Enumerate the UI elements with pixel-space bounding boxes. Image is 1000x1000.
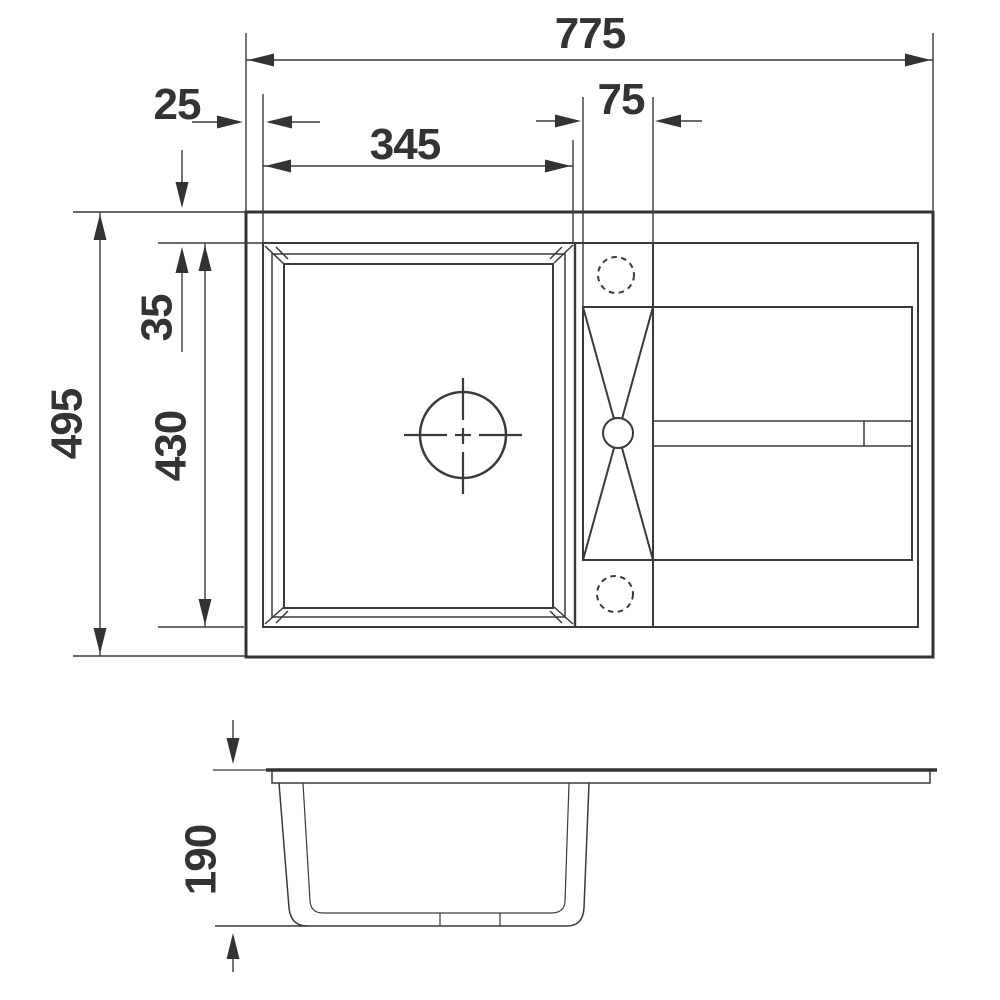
top-view-outer-outline — [246, 212, 933, 657]
tap-hole-option-bottom — [597, 576, 633, 612]
drainboard — [653, 307, 912, 560]
side-bowl — [215, 783, 589, 926]
tap-hole — [603, 418, 633, 448]
dim-bowl-height — [227, 720, 240, 972]
side-view — [213, 770, 937, 926]
tap-hole-option-top — [598, 257, 634, 293]
bowl-wall-left-outer — [279, 783, 307, 926]
top-view-inner-rim — [263, 243, 918, 627]
label-bowl-depth: 430 — [147, 411, 196, 481]
label-bowl-height: 190 — [177, 825, 226, 895]
dimension-labels: 775 25 345 75 495 35 430 190 — [43, 9, 645, 895]
drain-crosshair — [404, 378, 522, 494]
label-bowl-width: 345 — [370, 120, 441, 169]
side-rim-underside — [272, 771, 930, 783]
dim-overall-depth — [94, 212, 107, 656]
drain-hole — [404, 378, 522, 494]
dimension-annotations: 775 25 345 75 495 35 430 190 — [43, 9, 934, 972]
label-overall-depth: 495 — [43, 388, 92, 459]
drainboard-outline — [653, 307, 912, 560]
tap-panel — [583, 257, 653, 612]
bowl-wall-right-inner — [551, 783, 569, 913]
bowl-wall-right-outer — [567, 783, 589, 926]
bowl-wall-left-inner — [303, 783, 323, 913]
sink-drawing: 775 25 345 75 495 35 430 190 — [0, 0, 1000, 1000]
label-rim-offset-top: 35 — [133, 294, 182, 341]
dim-rim-offset-left — [192, 116, 320, 129]
dim-bowl-depth — [199, 243, 212, 627]
technical-drawing-canvas: 775 25 345 75 495 35 430 190 — [0, 0, 1000, 1000]
label-overall-width: 775 — [555, 9, 626, 58]
extension-lines — [73, 33, 933, 656]
label-tap-panel-width: 75 — [598, 75, 645, 124]
top-view — [246, 212, 933, 657]
label-rim-offset-left: 25 — [154, 80, 201, 129]
